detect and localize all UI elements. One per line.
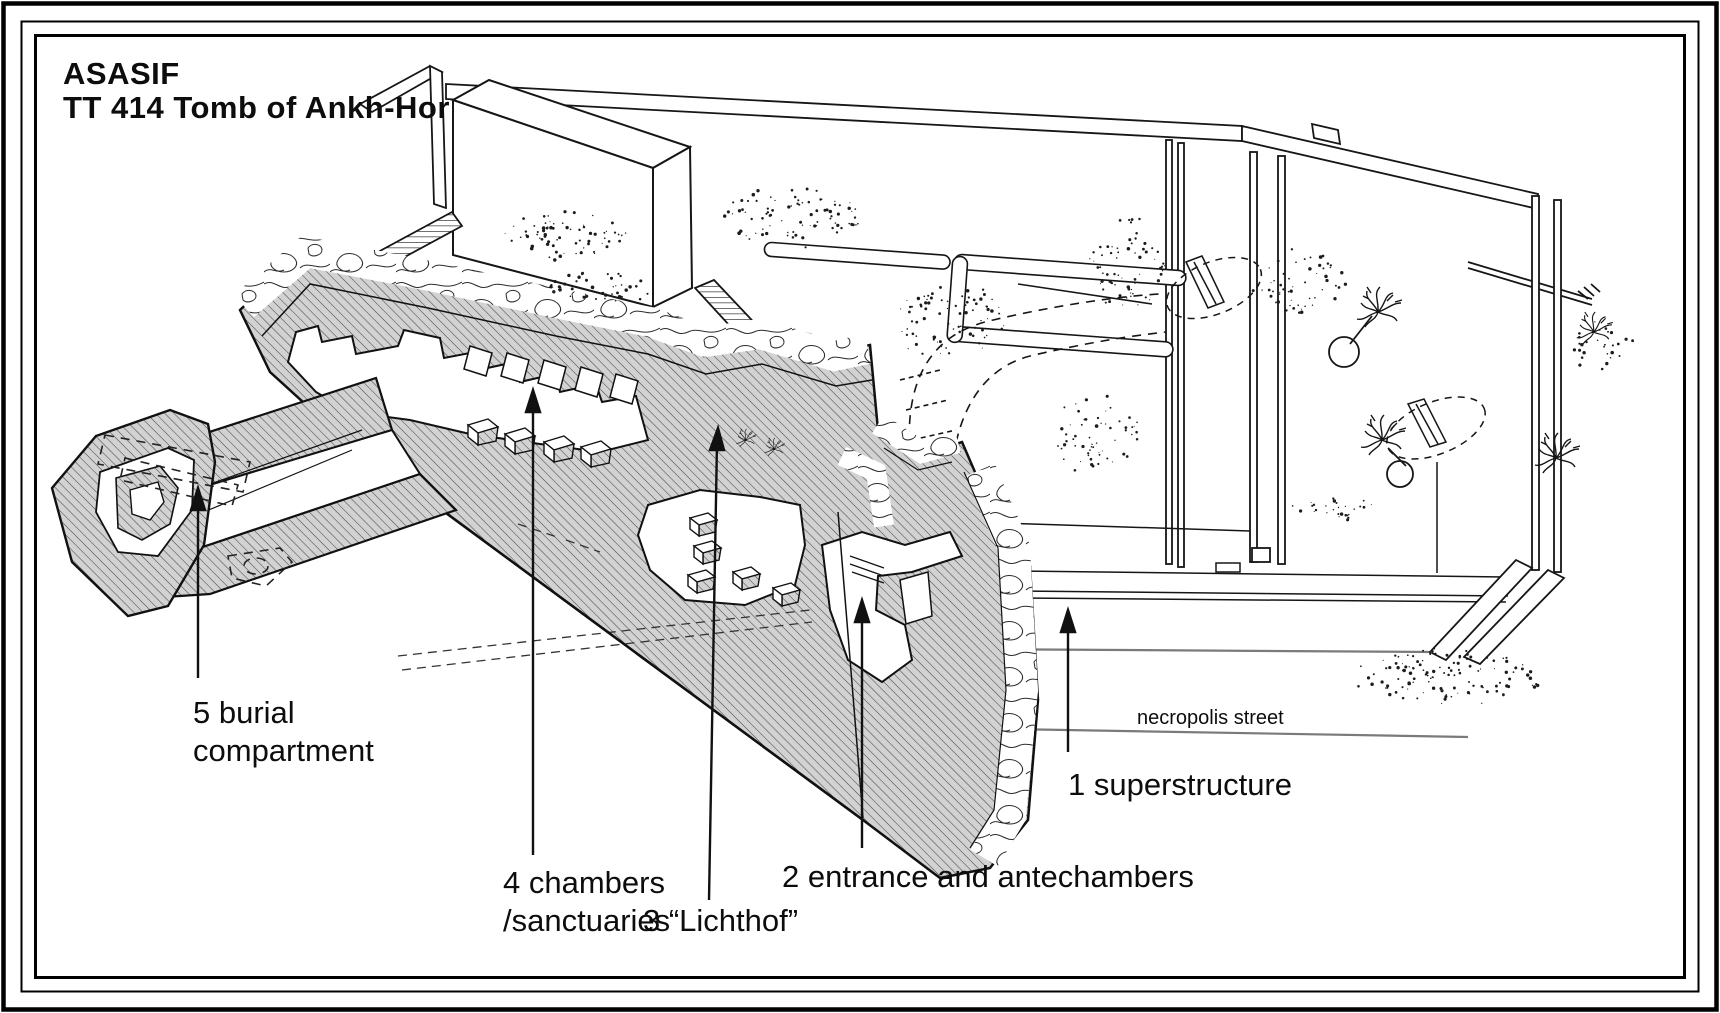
pole-tip (1578, 284, 1600, 299)
tree-icon (1357, 287, 1402, 327)
forecourt-bar-north (954, 254, 1186, 286)
tree-trunk (1388, 448, 1406, 466)
label-lichthof: 3 “Lichthof” (643, 903, 798, 938)
label-chambers-line1: 4 chambers (503, 865, 665, 900)
sand-stipple (1573, 321, 1634, 370)
court-wall-b2 (1278, 156, 1285, 564)
sand-stipple (1292, 497, 1372, 521)
tomb-diagram-page: ASASIF TT 414 Tomb of Ankh-Hor 5 burial … (0, 0, 1720, 1013)
label-necropolis-street: necropolis street (1137, 707, 1284, 729)
label-burial-line1: 5 burial (193, 695, 295, 730)
tree-pit (1329, 337, 1359, 367)
mastaba-cube (453, 80, 692, 307)
label-entrance: 2 entrance and antechambers (782, 859, 1194, 894)
gate-step (1216, 563, 1240, 572)
label-superstructure: 1 superstructure (1068, 767, 1292, 802)
forecourt-bar-west (764, 242, 951, 270)
mastaba-right-face (653, 147, 692, 307)
tree-icon (1577, 312, 1613, 344)
forecourt-inner-edge (1018, 284, 1152, 304)
tomb-axonometric-diagram: ASASIF TT 414 Tomb of Ankh-Hor 5 burial … (0, 0, 1720, 1013)
court-wall-b1 (1250, 152, 1257, 562)
enclosure-northeast-wall (1242, 126, 1538, 209)
survey-pole (1468, 262, 1592, 299)
sand-stipple (1089, 218, 1165, 306)
east-wall-2 (1554, 200, 1561, 572)
sand-stipple (1057, 395, 1138, 472)
wall-crenel (1312, 124, 1340, 144)
survey-pole-2 (1468, 268, 1592, 305)
label-burial-line2: compartment (193, 733, 374, 768)
tomb-title: TT 414 Tomb of Ankh-Hor (63, 90, 450, 125)
east-wall-1 (1532, 196, 1539, 570)
arrowhead-superstructure (1061, 610, 1075, 632)
wall-footing (1252, 548, 1270, 562)
sand-stipple (723, 188, 859, 249)
rock-massif-group (240, 248, 1038, 878)
court-wall-a2 (1178, 143, 1184, 567)
sand-stipple (1252, 248, 1347, 314)
site-title: ASASIF (63, 56, 180, 91)
entrance-niche (900, 572, 932, 624)
court-trees (1329, 287, 1613, 487)
stela-marker-south (1378, 384, 1494, 471)
tree-pit (1387, 461, 1413, 487)
enclosure-west-wall-edge (430, 66, 446, 208)
